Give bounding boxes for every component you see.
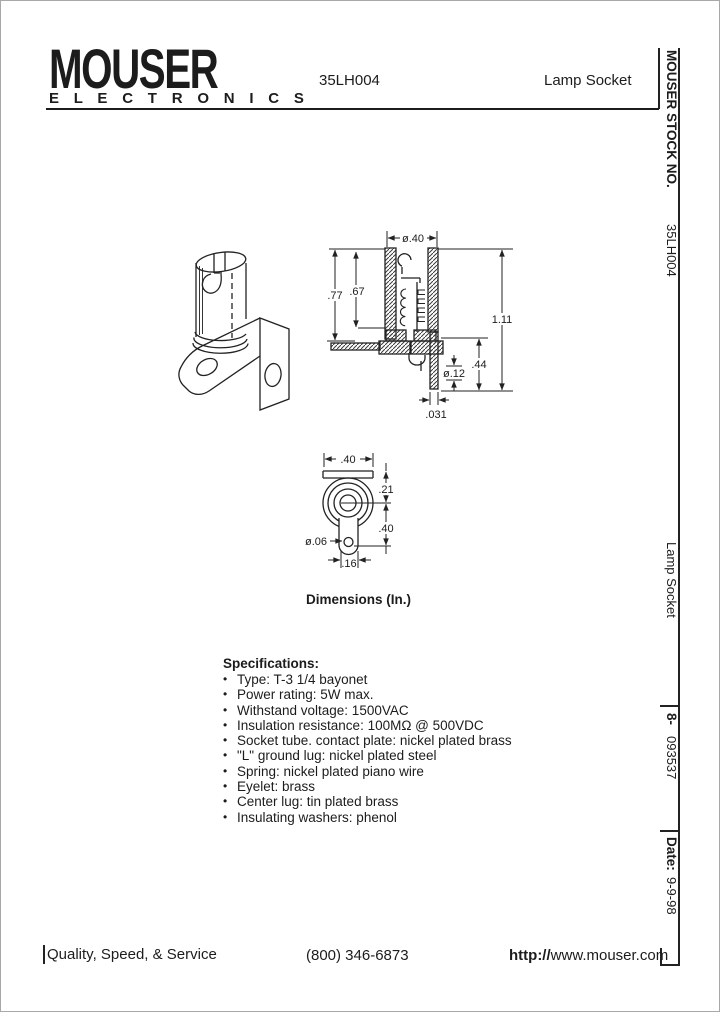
dim-label-w40: .40 bbox=[340, 454, 355, 466]
dim-label-d031: .031 bbox=[425, 409, 446, 421]
specifications-list: Type: T-3 1/4 bayonet Power rating: 5W m… bbox=[223, 672, 512, 825]
dim-label-dia12: ø.12 bbox=[443, 368, 465, 380]
footer-left-rule bbox=[43, 945, 45, 964]
cross-section-dimensions bbox=[327, 231, 513, 405]
dim-label-dia06: ø.06 bbox=[305, 536, 327, 548]
dimensions-caption: Dimensions (In.) bbox=[306, 592, 411, 607]
cross-section-dimension-labels: ø.40 .77 .67 1.11 .44 ø.12 .031 bbox=[324, 231, 514, 421]
isometric-view bbox=[179, 249, 289, 410]
datasheet-page: MOUSER E L E C T R O N I C S 35LH004 Lam… bbox=[0, 0, 720, 1012]
cross-section-view bbox=[331, 248, 443, 389]
spec-item: Insulating washers: phenol bbox=[223, 810, 512, 825]
spec-item: Withstand voltage: 1500VAC bbox=[223, 703, 512, 718]
specifications-title: Specifications: bbox=[223, 656, 319, 671]
footer-phone: (800) 346-6873 bbox=[306, 947, 409, 964]
spec-item: Insulation resistance: 100MΩ @ 500VDC bbox=[223, 718, 512, 733]
dim-label-d77: .77 bbox=[327, 290, 342, 302]
dim-label-d21: .21 bbox=[378, 484, 393, 496]
dim-label-d67: .67 bbox=[349, 286, 364, 298]
footer-tagline: Quality, Speed, & Service bbox=[47, 946, 217, 963]
spec-item: Type: T-3 1/4 bayonet bbox=[223, 672, 512, 687]
footer-url-rest: www.mouser.com bbox=[551, 947, 669, 964]
dim-label-d111: 1.11 bbox=[492, 314, 513, 326]
spec-item: "L" ground lug: nickel plated steel bbox=[223, 748, 512, 763]
dim-label-dia40: ø.40 bbox=[402, 233, 424, 245]
spec-item: Eyelet: brass bbox=[223, 779, 512, 794]
spec-item: Socket tube. contact plate: nickel plate… bbox=[223, 733, 512, 748]
technical-drawings: ø.40 .77 .67 1.11 .44 ø.12 .031 bbox=[1, 1, 720, 1012]
dim-label-d40b: .40 bbox=[378, 523, 393, 535]
footer-url: http://www.mouser.com bbox=[509, 947, 668, 964]
spec-item: Spring: nickel plated piano wire bbox=[223, 764, 512, 779]
dim-label-w16: .16 bbox=[341, 558, 356, 570]
dim-label-d44: .44 bbox=[471, 359, 486, 371]
spec-item: Power rating: 5W max. bbox=[223, 687, 512, 702]
footer-url-prefix: http:// bbox=[509, 947, 551, 964]
spec-item: Center lug: tin plated brass bbox=[223, 794, 512, 809]
